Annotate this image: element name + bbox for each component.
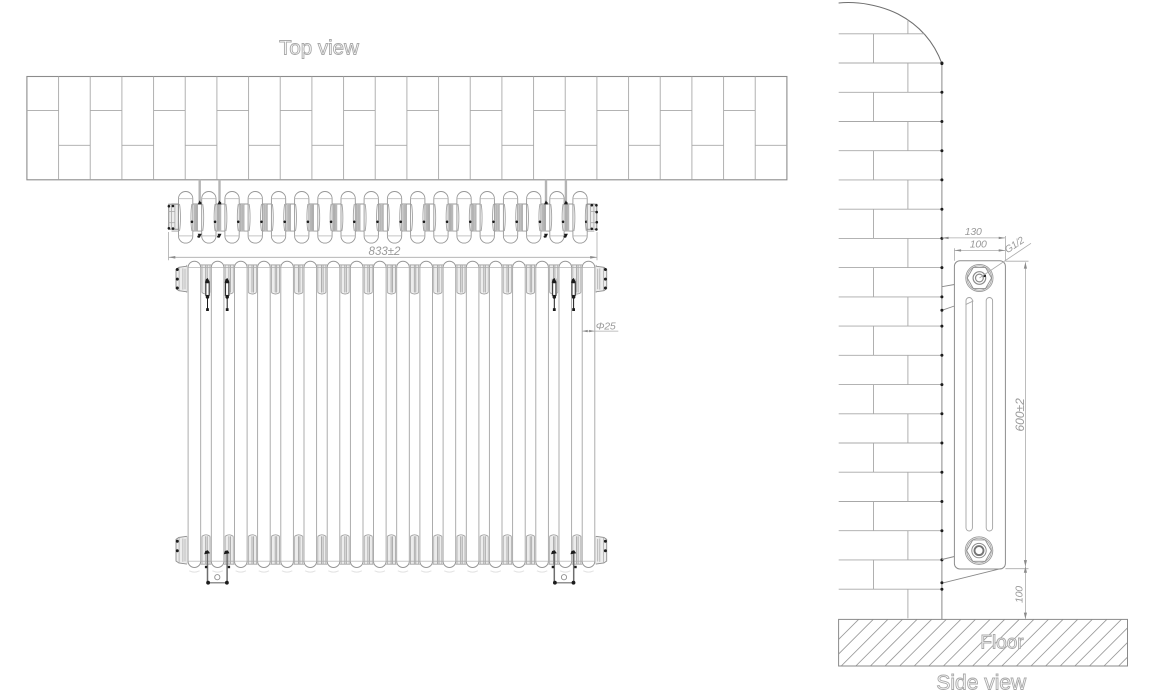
svg-text:Side view: Side view <box>936 672 1027 695</box>
svg-text:130: 130 <box>965 226 982 238</box>
svg-text:100: 100 <box>970 239 987 251</box>
svg-text:Φ25: Φ25 <box>596 320 616 332</box>
svg-text:100: 100 <box>1014 586 1026 603</box>
svg-text:G1/2: G1/2 <box>1003 235 1027 256</box>
svg-text:600±2: 600±2 <box>1013 398 1027 432</box>
svg-text:833±2: 833±2 <box>369 246 401 258</box>
svg-text:Floor: Floor <box>980 633 1024 654</box>
svg-text:Top view: Top view <box>279 37 359 60</box>
